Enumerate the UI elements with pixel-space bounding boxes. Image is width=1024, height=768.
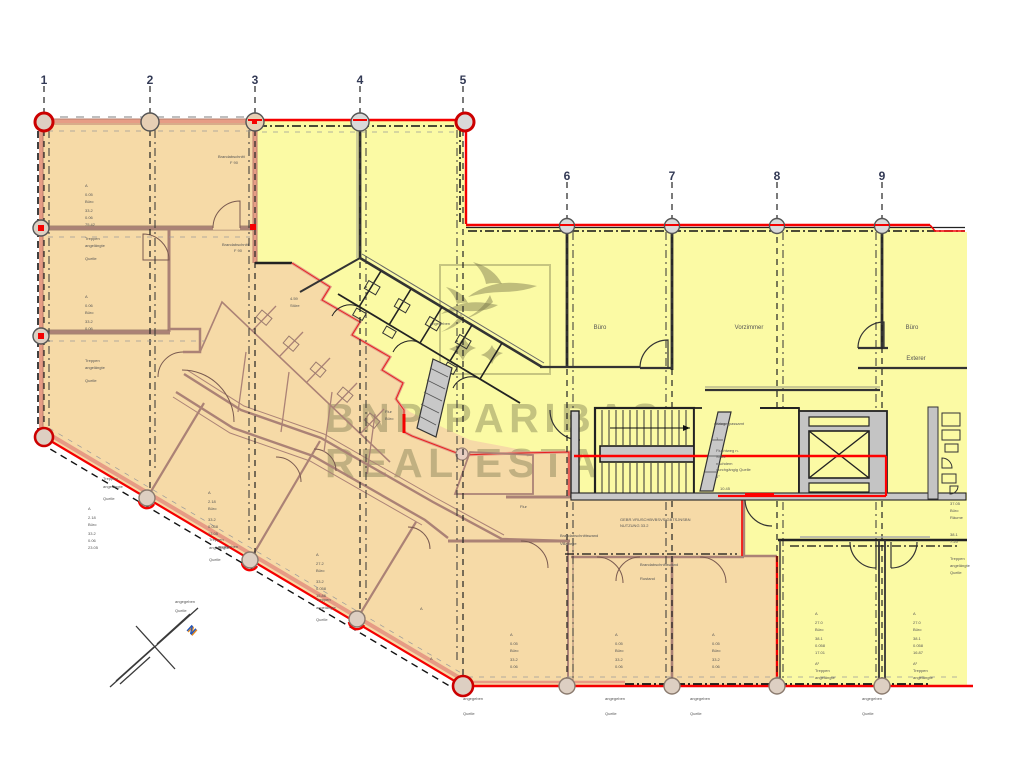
svg-text:angegeben: angegeben: [218, 544, 238, 549]
svg-text:Quelle: Quelle: [85, 256, 97, 261]
svg-text:38.1: 38.1: [950, 532, 959, 537]
svg-text:Rustand: Rustand: [640, 576, 655, 581]
svg-text:Treppen: Treppen: [950, 556, 965, 561]
svg-text:A: A: [420, 606, 423, 611]
svg-text:2: 2: [147, 73, 154, 87]
svg-text:A: A: [712, 632, 715, 637]
svg-text:Räume: Räume: [950, 515, 964, 520]
svg-text:Büro: Büro: [913, 627, 922, 632]
svg-text:angelängte: angelängte: [316, 605, 337, 610]
svg-text:17.01: 17.01: [815, 650, 826, 655]
svg-text:0.06: 0.06: [615, 664, 624, 669]
svg-text:27.2: 27.2: [316, 561, 325, 566]
svg-text:A²: A²: [913, 661, 918, 666]
svg-text:Brandabschnittswand: Brandabschnittswand: [560, 533, 598, 538]
svg-text:5: 5: [460, 73, 467, 87]
svg-text:Stüre: Stüre: [290, 303, 300, 308]
svg-text:A: A: [815, 611, 818, 616]
svg-text:Büro: Büro: [208, 506, 217, 511]
svg-text:8: 8: [774, 169, 781, 183]
svg-text:angelängte: angelängte: [85, 243, 106, 248]
svg-text:33.2: 33.2: [85, 208, 94, 213]
svg-text:4: 4: [357, 73, 364, 87]
svg-text:5°: 5°: [716, 474, 720, 479]
svg-text:Treppen: Treppen: [209, 537, 224, 542]
svg-text:A: A: [615, 632, 618, 637]
svg-text:Villafarbe: Villafarbe: [560, 541, 577, 546]
svg-text:33.2: 33.2: [208, 517, 217, 522]
svg-text:33.2: 33.2: [88, 531, 97, 536]
svg-text:durchgängig Quelle: durchgängig Quelle: [716, 467, 751, 472]
svg-text:F 90: F 90: [234, 248, 243, 253]
svg-text:Quelle: Quelle: [103, 496, 115, 501]
svg-text:A²: A²: [815, 661, 820, 666]
svg-text:angelängte: angelängte: [950, 563, 971, 568]
svg-text:angelängte: angelängte: [103, 484, 124, 489]
svg-text:Quelle: Quelle: [85, 378, 97, 383]
svg-text:6: 6: [564, 169, 571, 183]
svg-text:Treppen: Treppen: [85, 358, 100, 363]
svg-text:Brandabschnittswand: Brandabschnittswand: [640, 562, 678, 567]
svg-text:38.1: 38.1: [815, 636, 824, 641]
svg-text:Quelle: Quelle: [605, 711, 617, 716]
svg-text:Büro: Büro: [510, 648, 519, 653]
svg-text:Büro: Büro: [85, 310, 94, 315]
svg-text:0.06: 0.06: [85, 303, 94, 308]
svg-text:0.06: 0.06: [712, 664, 721, 669]
svg-text:Flur: Flur: [385, 409, 393, 414]
svg-text:angegeben: angegeben: [862, 696, 882, 701]
svg-text:Büro: Büro: [815, 627, 824, 632]
svg-text:10.45: 10.45: [720, 486, 731, 491]
svg-text:0.05: 0.05: [615, 641, 624, 646]
svg-text:37.05: 37.05: [950, 501, 961, 506]
svg-text:angelängte: angelängte: [913, 675, 934, 680]
svg-text:16.87: 16.87: [913, 650, 924, 655]
svg-text:Fluchtweg n.: Fluchtweg n.: [716, 448, 739, 453]
svg-text:33.2: 33.2: [615, 657, 624, 662]
svg-text:Quelle: Quelle: [209, 557, 221, 562]
svg-text:Flur: Flur: [520, 504, 528, 509]
svg-text:Büro: Büro: [712, 648, 721, 653]
svg-text:0.05: 0.05: [85, 192, 94, 197]
svg-text:3: 3: [252, 73, 259, 87]
svg-text:angegeben: angegeben: [690, 696, 710, 701]
svg-text:Quelle: Quelle: [950, 570, 962, 575]
svg-text:0.058: 0.058: [815, 643, 826, 648]
svg-text:Quelle: Quelle: [463, 711, 475, 716]
svg-text:nachdem: nachdem: [716, 461, 733, 466]
svg-text:Stüre: Stüre: [716, 454, 726, 459]
svg-text:Büro: Büro: [85, 199, 94, 204]
svg-text:A: A: [208, 490, 211, 495]
svg-text:Büro: Büro: [615, 648, 624, 653]
svg-text:Büro: Büro: [950, 508, 959, 513]
svg-text:1: 1: [41, 73, 48, 87]
svg-text:NUTZUNG 33.2: NUTZUNG 33.2: [620, 523, 649, 528]
svg-text:F 90: F 90: [230, 160, 239, 165]
svg-text:38.1: 38.1: [913, 636, 922, 641]
svg-text:Quelle: Quelle: [690, 711, 702, 716]
svg-text:A: A: [85, 183, 88, 188]
svg-text:7: 7: [669, 169, 676, 183]
svg-text:2.18: 2.18: [88, 515, 97, 520]
svg-text:Büro: Büro: [594, 325, 607, 331]
svg-text:Büro: Büro: [906, 325, 919, 331]
svg-text:9: 9: [879, 169, 886, 183]
svg-text:A: A: [88, 506, 91, 511]
svg-text:7.25: 7.25: [950, 539, 959, 544]
svg-text:Treppen: Treppen: [913, 668, 928, 673]
svg-text:A: A: [316, 552, 319, 557]
svg-text:GEBR.VRUSCHBVBSVSIGBTSJNSBN: GEBR.VRUSCHBVBSVSIGBTSJNSBN: [620, 517, 691, 522]
svg-text:Brandabschnitt: Brandabschnitt: [222, 242, 250, 247]
svg-text:Brandabschnitt: Brandabschnitt: [218, 154, 246, 159]
svg-text:A: A: [510, 632, 513, 637]
svg-text:27.0: 27.0: [815, 620, 824, 625]
svg-text:75.42: 75.42: [85, 222, 96, 227]
svg-text:Büro: Büro: [88, 522, 97, 527]
svg-text:A: A: [85, 294, 88, 299]
svg-text:Quelle: Quelle: [316, 617, 328, 622]
svg-text:0.058: 0.058: [316, 586, 327, 591]
svg-text:A: A: [430, 656, 433, 661]
svg-text:33.2: 33.2: [316, 579, 325, 584]
svg-text:0.06: 0.06: [88, 538, 97, 543]
svg-text:angegeben: angegeben: [605, 696, 625, 701]
svg-text:0.05: 0.05: [712, 641, 721, 646]
svg-text:angelängte: angelängte: [815, 675, 836, 680]
svg-text:Büro: Büro: [316, 568, 325, 573]
svg-text:angegeben: angegeben: [175, 599, 195, 604]
svg-text:Kriegerpassamt: Kriegerpassamt: [716, 421, 745, 426]
svg-text:0.058: 0.058: [208, 524, 219, 529]
svg-text:Treppen: Treppen: [103, 476, 118, 481]
svg-text:A: A: [913, 611, 916, 616]
svg-text:0.06: 0.06: [85, 326, 94, 331]
svg-text:0.06: 0.06: [510, 664, 519, 669]
svg-text:angegeben: angegeben: [463, 696, 483, 701]
svg-text:33.2: 33.2: [712, 657, 721, 662]
svg-text:Exterer: Exterer: [906, 356, 925, 362]
svg-text:23.05: 23.05: [88, 545, 99, 550]
svg-text:0.06: 0.06: [85, 215, 94, 220]
svg-text:0.05: 0.05: [510, 641, 519, 646]
svg-text:4.59: 4.59: [290, 296, 299, 301]
svg-text:Treppen: Treppen: [815, 668, 830, 673]
svg-text:33.2: 33.2: [510, 657, 519, 662]
svg-text:angegeben: angegeben: [430, 321, 450, 326]
svg-text:33.2: 33.2: [85, 319, 94, 324]
svg-text:0.058: 0.058: [913, 643, 924, 648]
svg-text:Büro: Büro: [385, 416, 394, 421]
svg-text:2.18: 2.18: [208, 499, 217, 504]
svg-text:27.0: 27.0: [913, 620, 922, 625]
svg-text:15.86: 15.86: [316, 593, 327, 598]
svg-text:13.05: 13.05: [208, 531, 219, 536]
svg-text:Vorzimmer: Vorzimmer: [735, 325, 764, 331]
svg-text:angelängte: angelängte: [85, 365, 106, 370]
svg-text:Quelle: Quelle: [175, 608, 187, 613]
svg-text:Treppen: Treppen: [85, 236, 100, 241]
svg-text:Quelle: Quelle: [862, 711, 874, 716]
